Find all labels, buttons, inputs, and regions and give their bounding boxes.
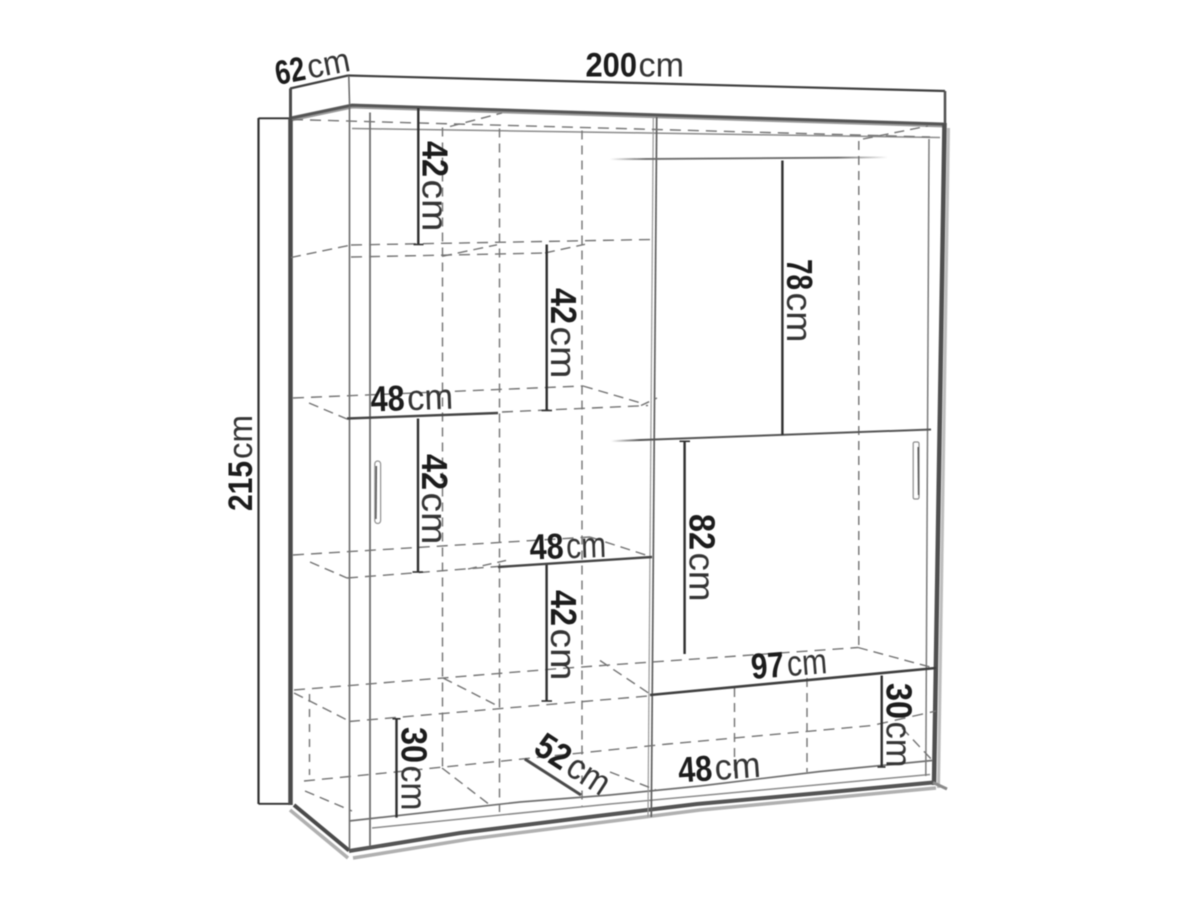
svg-text:78: 78 <box>779 259 820 290</box>
svg-text:215: 215 <box>222 461 260 511</box>
svg-text:48: 48 <box>529 525 564 567</box>
svg-text:cm: cm <box>639 47 685 85</box>
svg-text:30: 30 <box>394 727 435 763</box>
svg-text:30: 30 <box>879 683 920 719</box>
svg-text:cm: cm <box>543 327 584 379</box>
svg-text:cm: cm <box>543 629 584 681</box>
svg-text:cm: cm <box>682 553 723 602</box>
svg-text:cm: cm <box>565 524 606 566</box>
svg-text:200: 200 <box>586 47 638 85</box>
svg-text:42: 42 <box>415 141 456 177</box>
svg-text:cm: cm <box>879 722 920 768</box>
svg-text:48: 48 <box>370 377 405 419</box>
svg-text:42: 42 <box>414 454 455 490</box>
svg-text:42: 42 <box>543 590 584 626</box>
svg-text:cm: cm <box>779 293 820 343</box>
svg-text:cm: cm <box>414 493 455 545</box>
svg-text:cm: cm <box>394 766 435 811</box>
svg-text:cm: cm <box>785 640 828 684</box>
svg-text:42: 42 <box>543 288 584 324</box>
svg-text:97: 97 <box>749 644 785 687</box>
svg-text:82: 82 <box>682 514 723 550</box>
svg-text:cm: cm <box>304 41 353 87</box>
svg-text:48: 48 <box>677 747 714 790</box>
svg-text:cm: cm <box>222 415 260 459</box>
svg-text:cm: cm <box>713 744 762 788</box>
svg-text:cm: cm <box>415 180 456 232</box>
svg-text:cm: cm <box>406 376 453 419</box>
